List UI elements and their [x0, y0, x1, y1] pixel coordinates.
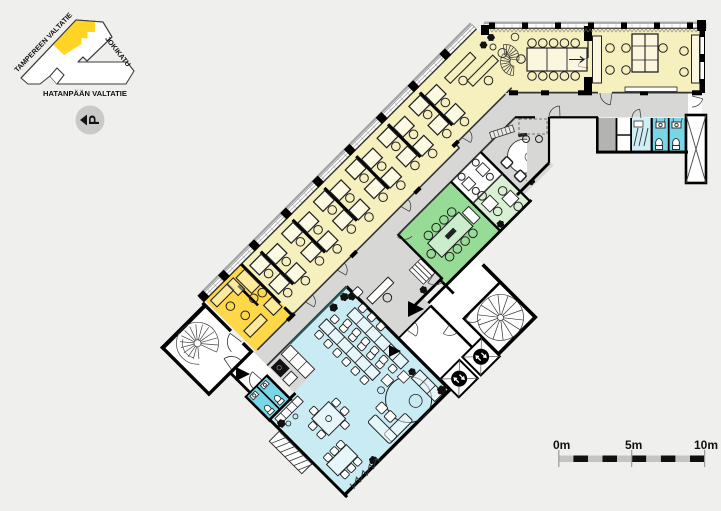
svg-text:5m: 5m	[625, 438, 642, 452]
svg-text:0m: 0m	[553, 438, 570, 452]
svg-text:P: P	[86, 115, 103, 125]
svg-text:10m: 10m	[694, 438, 718, 452]
svg-text:HATANPÄÄN VALTATIE: HATANPÄÄN VALTATIE	[43, 89, 127, 98]
